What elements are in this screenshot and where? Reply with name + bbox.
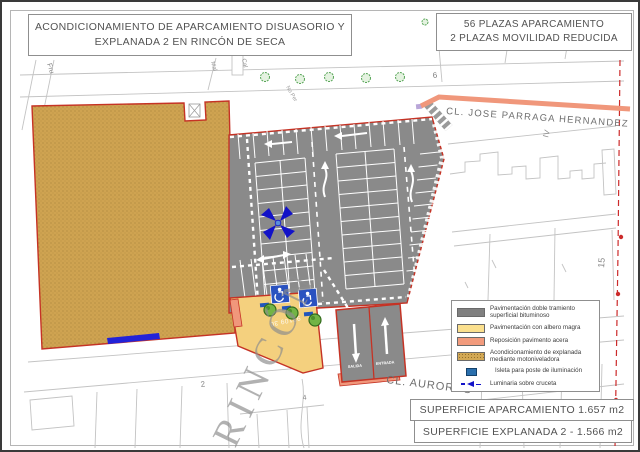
legend-label: Pavimentación con albero magra — [490, 325, 580, 332]
legend-swatch-gray — [457, 308, 485, 317]
site-plan-page: 93109 30 SALIDA ENTRADA — [0, 0, 640, 452]
legend-label: Reposición pavimento acera — [490, 338, 568, 345]
legend-label: Luminaria sobre cruceta — [490, 381, 556, 388]
title-line-2: EXPLANADA 2 EN RINCÓN DE SECA — [29, 35, 351, 50]
legend-luminaria-icon — [457, 380, 485, 389]
explanada-area — [32, 101, 235, 349]
title-line-1: ACONDICIONAMIENTO DE APARCAMIENTO DISUAS… — [29, 20, 351, 35]
parcel-number-4: 4 — [302, 394, 307, 401]
legend-label: Acondicionamiento de explanada mediante … — [490, 350, 595, 364]
legend-swatch-acera — [457, 337, 485, 346]
tree-icon — [261, 73, 270, 82]
tree-icon — [309, 314, 321, 326]
tree-icon — [325, 73, 334, 82]
legend-swatch-explanada — [457, 352, 485, 361]
legend-item-bituminoso: Pavimentación doble tramiento superficia… — [457, 306, 595, 320]
tree-icon — [362, 74, 371, 83]
tree-icon — [422, 19, 428, 25]
surface-explanada-box: SUPERFICIE EXPLANADA 2 - 1.566 m2 — [414, 420, 632, 443]
street-no-per: No Per — [284, 85, 298, 103]
parcel-number-15: 15 — [596, 257, 607, 268]
tree-icon — [296, 75, 305, 84]
title-box: ACONDICIONAMIENTO DE APARCAMIENTO DISUAS… — [28, 14, 352, 56]
legend-label: Pavimentación doble tramiento superficia… — [490, 306, 595, 320]
surface-aparcamiento-box: SUPERFICIE APARCAMIENTO 1.657 m2 — [410, 399, 634, 421]
legend-item-luminaria: Luminaria sobre cruceta — [457, 380, 595, 389]
parcel-number-iv: IV — [541, 128, 552, 138]
legend-swatch-albero — [457, 324, 485, 333]
tree-icon — [396, 73, 405, 82]
legend-item-acera: Reposición pavimento acera — [457, 337, 595, 346]
legend-item-albero: Pavimentación con albero magra — [457, 324, 595, 333]
parcel-number-6: 6 — [432, 71, 438, 80]
entrance-lanes: SALIDA ENTRADA — [336, 304, 406, 382]
plazas-line-2: 2 PLAZAS MOVILIDAD REDUCIDA — [437, 32, 631, 46]
legend-box: Pavimentación doble tramiento superficia… — [451, 300, 600, 392]
legend-item-isleta: Isleta para poste de iluminación — [457, 368, 595, 376]
parcel-number-2: 2 — [200, 379, 206, 389]
surface-aparcamiento-label: SUPERFICIE APARCAMIENTO 1.657 m2 — [411, 404, 633, 416]
plazas-line-1: 56 PLAZAS APARCAMIENTO — [437, 18, 631, 32]
legend-label: Isleta para poste de iluminación — [495, 368, 582, 375]
surface-explanada-label: SUPERFICIE EXPLANADA 2 - 1.566 m2 — [415, 426, 631, 438]
legend-swatch-isleta — [466, 368, 477, 376]
plazas-box: 56 PLAZAS APARCAMIENTO 2 PLAZAS MOVILIDA… — [436, 13, 632, 51]
legend-item-explanada: Acondicionamiento de explanada mediante … — [457, 350, 595, 364]
